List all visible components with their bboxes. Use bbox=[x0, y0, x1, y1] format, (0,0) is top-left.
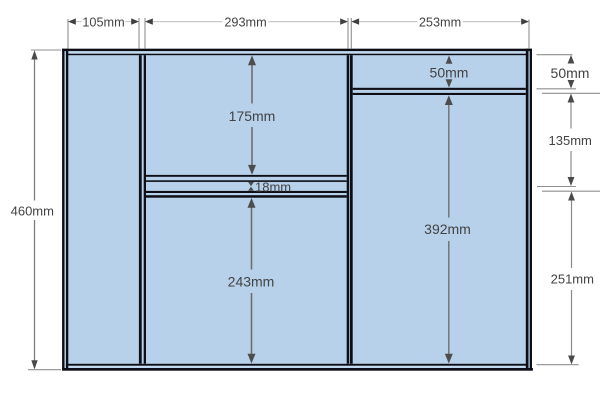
svg-text:50mm: 50mm bbox=[430, 64, 469, 80]
svg-text:253mm: 253mm bbox=[419, 16, 461, 30]
svg-text:135mm: 135mm bbox=[549, 133, 592, 148]
svg-text:460mm: 460mm bbox=[11, 204, 54, 219]
svg-text:105mm: 105mm bbox=[82, 16, 124, 30]
svg-text:251mm: 251mm bbox=[551, 271, 594, 286]
svg-text:392mm: 392mm bbox=[424, 221, 471, 237]
svg-text:293mm: 293mm bbox=[224, 16, 266, 30]
svg-text:243mm: 243mm bbox=[228, 273, 275, 289]
svg-text:18mm: 18mm bbox=[255, 179, 291, 194]
svg-text:175mm: 175mm bbox=[229, 108, 276, 124]
svg-text:50mm: 50mm bbox=[551, 65, 590, 81]
